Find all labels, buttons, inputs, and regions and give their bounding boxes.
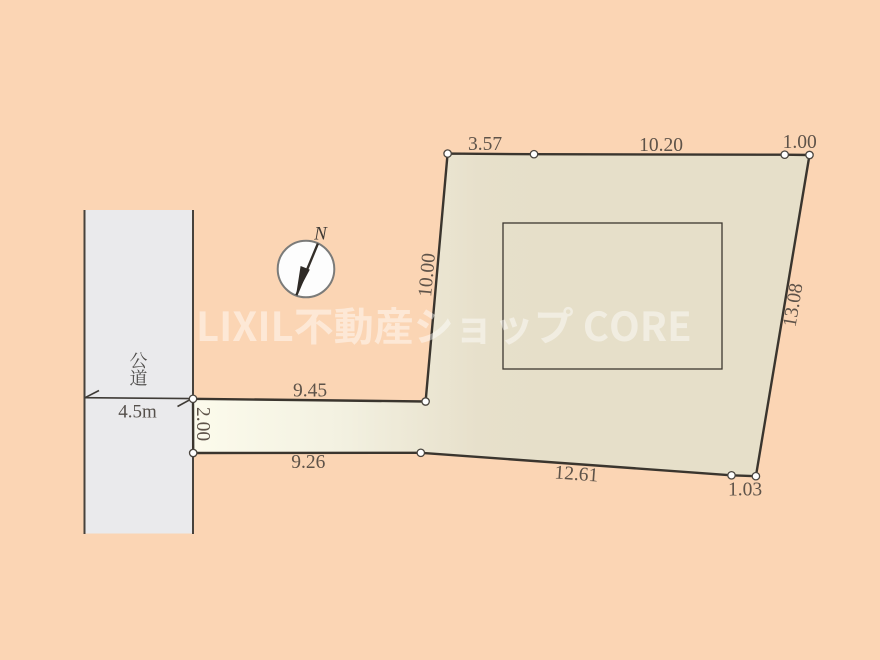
svg-text:1.03: 1.03 (728, 480, 762, 501)
svg-text:10.00: 10.00 (415, 252, 440, 298)
svg-text:9.26: 9.26 (291, 452, 325, 473)
svg-text:2.00: 2.00 (192, 407, 213, 441)
svg-text:1.00: 1.00 (783, 132, 817, 153)
svg-text:4.5m: 4.5m (118, 402, 157, 423)
svg-text:12.61: 12.61 (554, 462, 599, 486)
svg-text:3.57: 3.57 (468, 134, 502, 155)
svg-text:N: N (313, 224, 328, 245)
svg-text:9.45: 9.45 (293, 381, 327, 402)
svg-text:10.20: 10.20 (639, 135, 683, 156)
